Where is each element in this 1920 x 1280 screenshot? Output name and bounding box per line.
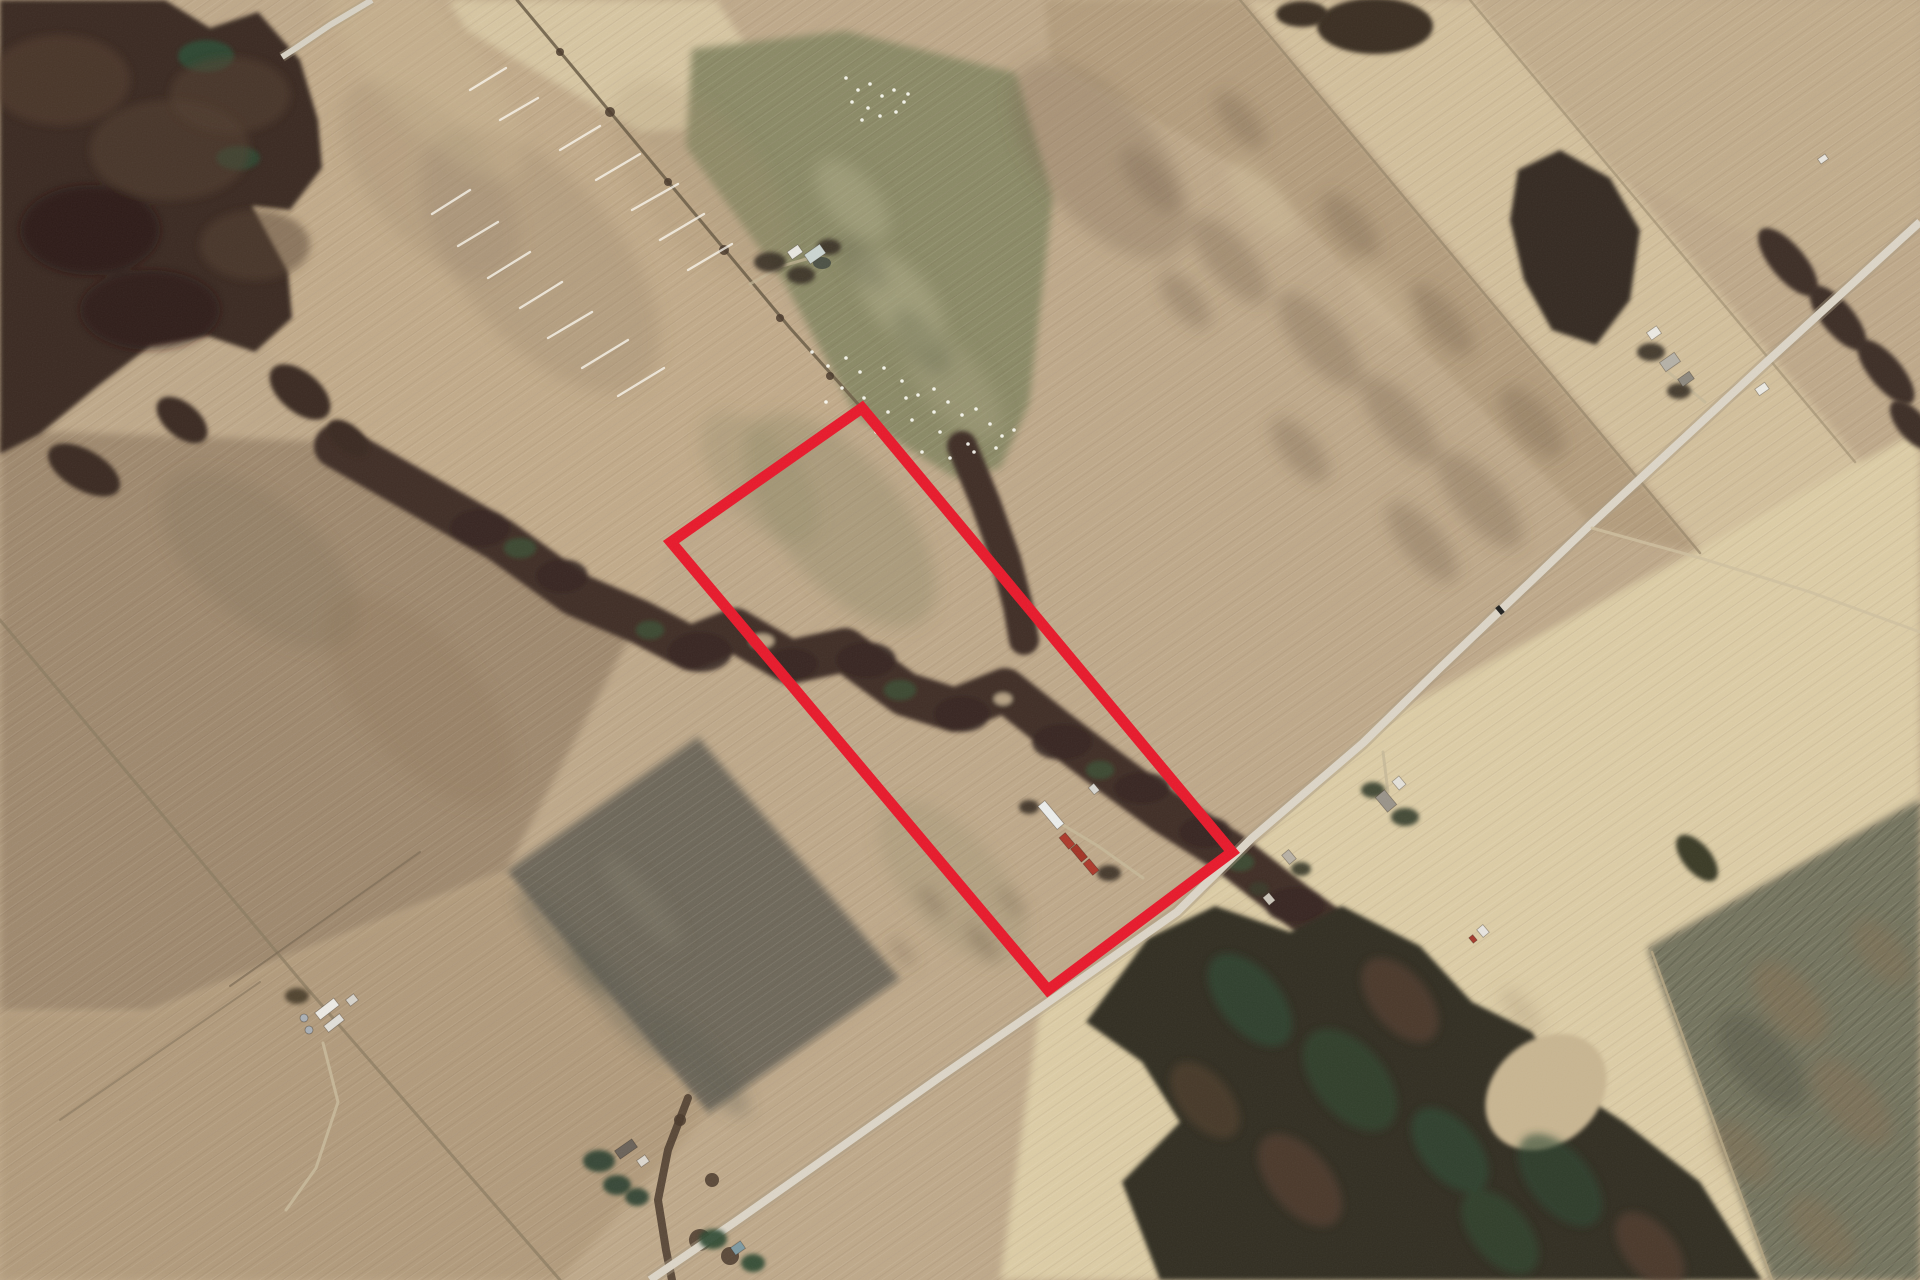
photo-grain <box>0 0 1920 1280</box>
aerial-map-canvas <box>0 0 1920 1280</box>
satellite-photo <box>0 0 1920 1280</box>
